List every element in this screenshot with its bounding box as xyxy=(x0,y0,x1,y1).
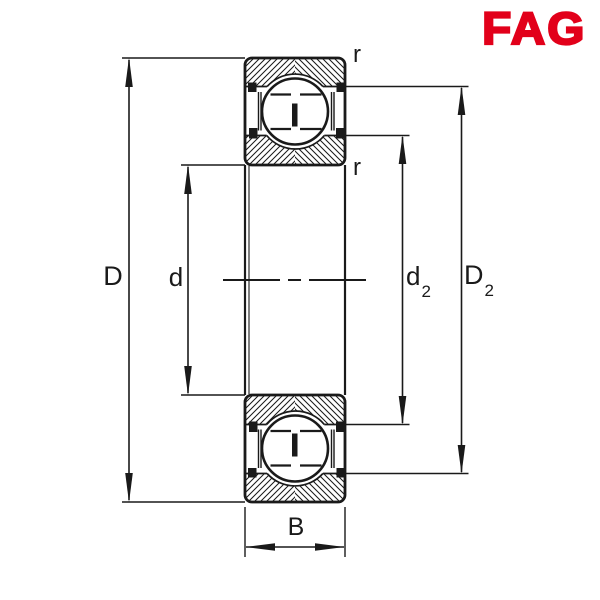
bearing-section-top xyxy=(245,58,345,165)
cage-rivet-bottom xyxy=(292,434,298,457)
bearing-section-drawing xyxy=(0,0,600,600)
fag-logo: FAG xyxy=(483,3,587,55)
dim-label-B: B xyxy=(281,515,311,540)
dim-label-d: d xyxy=(162,264,190,290)
bearing-section-bottom xyxy=(245,395,345,502)
dim-label-D2: D2 xyxy=(464,262,493,289)
dim-label-r-bottom: r xyxy=(353,156,361,180)
dim-label-d2: d2 xyxy=(406,263,430,289)
bearing-diagram-page: D d d2 D2 B r r FAG xyxy=(0,0,600,600)
dim-label-r-top: r xyxy=(353,43,361,67)
cage-rivet-top xyxy=(292,104,298,127)
dim-label-D: D xyxy=(98,263,128,290)
